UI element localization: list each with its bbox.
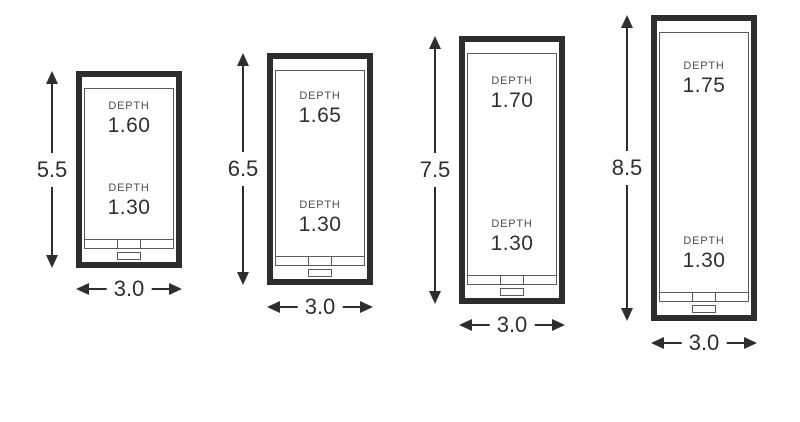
shallow-end-depth-label: DEPTH: [465, 219, 559, 230]
pool-diagram-4: 8.5 DEPTH 1.75 DEPTH 1.30 3.0: [0, 0, 800, 422]
height-label: 8.5: [610, 151, 645, 185]
arrow-down-icon: [237, 272, 249, 285]
pool-diagram-3: 7.5 DEPTH 1.70 DEPTH 1.30 3.0: [0, 0, 800, 422]
pool-inner-wall-line: [467, 53, 557, 285]
bench-center-section: [500, 276, 524, 285]
dimension-line: [626, 19, 628, 317]
dimension-line: [463, 324, 561, 326]
dimension-line: [434, 40, 436, 300]
deep-end-depth: DEPTH 1.70: [465, 76, 559, 111]
deep-end-depth-label: DEPTH: [657, 61, 751, 72]
deep-end-depth-label: DEPTH: [273, 91, 367, 102]
width-label: 3.0: [107, 277, 152, 301]
arrow-up-icon: [46, 71, 58, 84]
width-label: 3.0: [682, 331, 727, 355]
pool-outline: DEPTH 1.75 DEPTH 1.30: [651, 15, 757, 321]
width-dimension-arrow: 3.0: [459, 315, 565, 335]
shallow-end-depth-label: DEPTH: [657, 236, 751, 247]
arrow-left-icon: [267, 301, 280, 313]
shallow-end-depth: DEPTH 1.30: [82, 183, 176, 218]
pool-inner-wall-line: [275, 70, 365, 266]
bench-seat: [659, 292, 749, 302]
deep-end-depth: DEPTH 1.75: [657, 61, 751, 96]
pool-inner-wall-line: [659, 32, 749, 302]
arrow-down-icon: [46, 255, 58, 268]
entry-step: [500, 288, 524, 296]
height-label: 7.5: [418, 153, 453, 187]
width-dimension-arrow: 3.0: [267, 297, 373, 317]
height-dimension-arrow: 6.5: [236, 53, 250, 285]
arrow-right-icon: [360, 301, 373, 313]
shallow-end-depth-value: 1.30: [657, 250, 751, 271]
width-label: 3.0: [298, 295, 343, 319]
pool-outline: DEPTH 1.65 DEPTH 1.30: [267, 53, 373, 285]
height-dimension-arrow: 8.5: [620, 15, 634, 321]
deep-end-depth-value: 1.75: [657, 75, 751, 96]
deep-end-depth: DEPTH 1.60: [82, 101, 176, 136]
dimension-line: [242, 57, 244, 281]
shallow-end-depth: DEPTH 1.30: [465, 219, 559, 254]
dimension-line: [51, 75, 53, 264]
dimension-line: [655, 342, 753, 344]
bench-seat: [275, 256, 365, 266]
deep-end-depth-label: DEPTH: [465, 76, 559, 87]
arrow-up-icon: [621, 15, 633, 28]
width-dimension-arrow: 3.0: [651, 333, 757, 353]
deep-end-depth-label: DEPTH: [82, 101, 176, 112]
arrow-down-icon: [621, 308, 633, 321]
shallow-end-depth-value: 1.30: [82, 197, 176, 218]
height-label: 5.5: [35, 153, 70, 187]
shallow-end-depth: DEPTH 1.30: [273, 200, 367, 235]
bench-seat: [467, 275, 557, 285]
arrow-left-icon: [651, 337, 664, 349]
arrow-right-icon: [169, 283, 182, 295]
height-label: 6.5: [226, 152, 261, 186]
pool-inner-wall-line: [84, 88, 174, 249]
shallow-end-depth-label: DEPTH: [82, 183, 176, 194]
shallow-end-depth-value: 1.30: [465, 233, 559, 254]
dimension-line: [80, 288, 178, 290]
bench-center-section: [117, 240, 141, 249]
bench-center-section: [308, 257, 332, 266]
arrow-left-icon: [76, 283, 89, 295]
pool-depth-diagram: 5.5 DEPTH 1.60 DEPTH 1.30 3.0: [0, 0, 800, 422]
shallow-end-depth-label: DEPTH: [273, 200, 367, 211]
pool-outline: DEPTH 1.60 DEPTH 1.30: [76, 71, 182, 268]
entry-step: [117, 252, 141, 260]
width-dimension-arrow: 3.0: [76, 279, 182, 299]
arrow-right-icon: [552, 319, 565, 331]
bench-center-section: [692, 293, 716, 302]
entry-step: [692, 305, 716, 313]
dimension-line: [271, 306, 369, 308]
width-label: 3.0: [490, 313, 535, 337]
height-dimension-arrow: 7.5: [428, 36, 442, 304]
pool-diagram-1: 5.5 DEPTH 1.60 DEPTH 1.30 3.0: [0, 0, 800, 422]
height-dimension-arrow: 5.5: [45, 71, 59, 268]
arrow-down-icon: [429, 291, 441, 304]
pool-diagram-2: 6.5 DEPTH 1.65 DEPTH 1.30 3.0: [0, 0, 800, 422]
shallow-end-depth-value: 1.30: [273, 214, 367, 235]
bench-seat: [84, 239, 174, 249]
shallow-end-depth: DEPTH 1.30: [657, 236, 751, 271]
arrow-up-icon: [237, 53, 249, 66]
deep-end-depth: DEPTH 1.65: [273, 91, 367, 126]
entry-step: [308, 269, 332, 277]
arrow-left-icon: [459, 319, 472, 331]
arrow-up-icon: [429, 36, 441, 49]
arrow-right-icon: [744, 337, 757, 349]
deep-end-depth-value: 1.60: [82, 115, 176, 136]
deep-end-depth-value: 1.65: [273, 105, 367, 126]
deep-end-depth-value: 1.70: [465, 90, 559, 111]
pool-outline: DEPTH 1.70 DEPTH 1.30: [459, 36, 565, 304]
